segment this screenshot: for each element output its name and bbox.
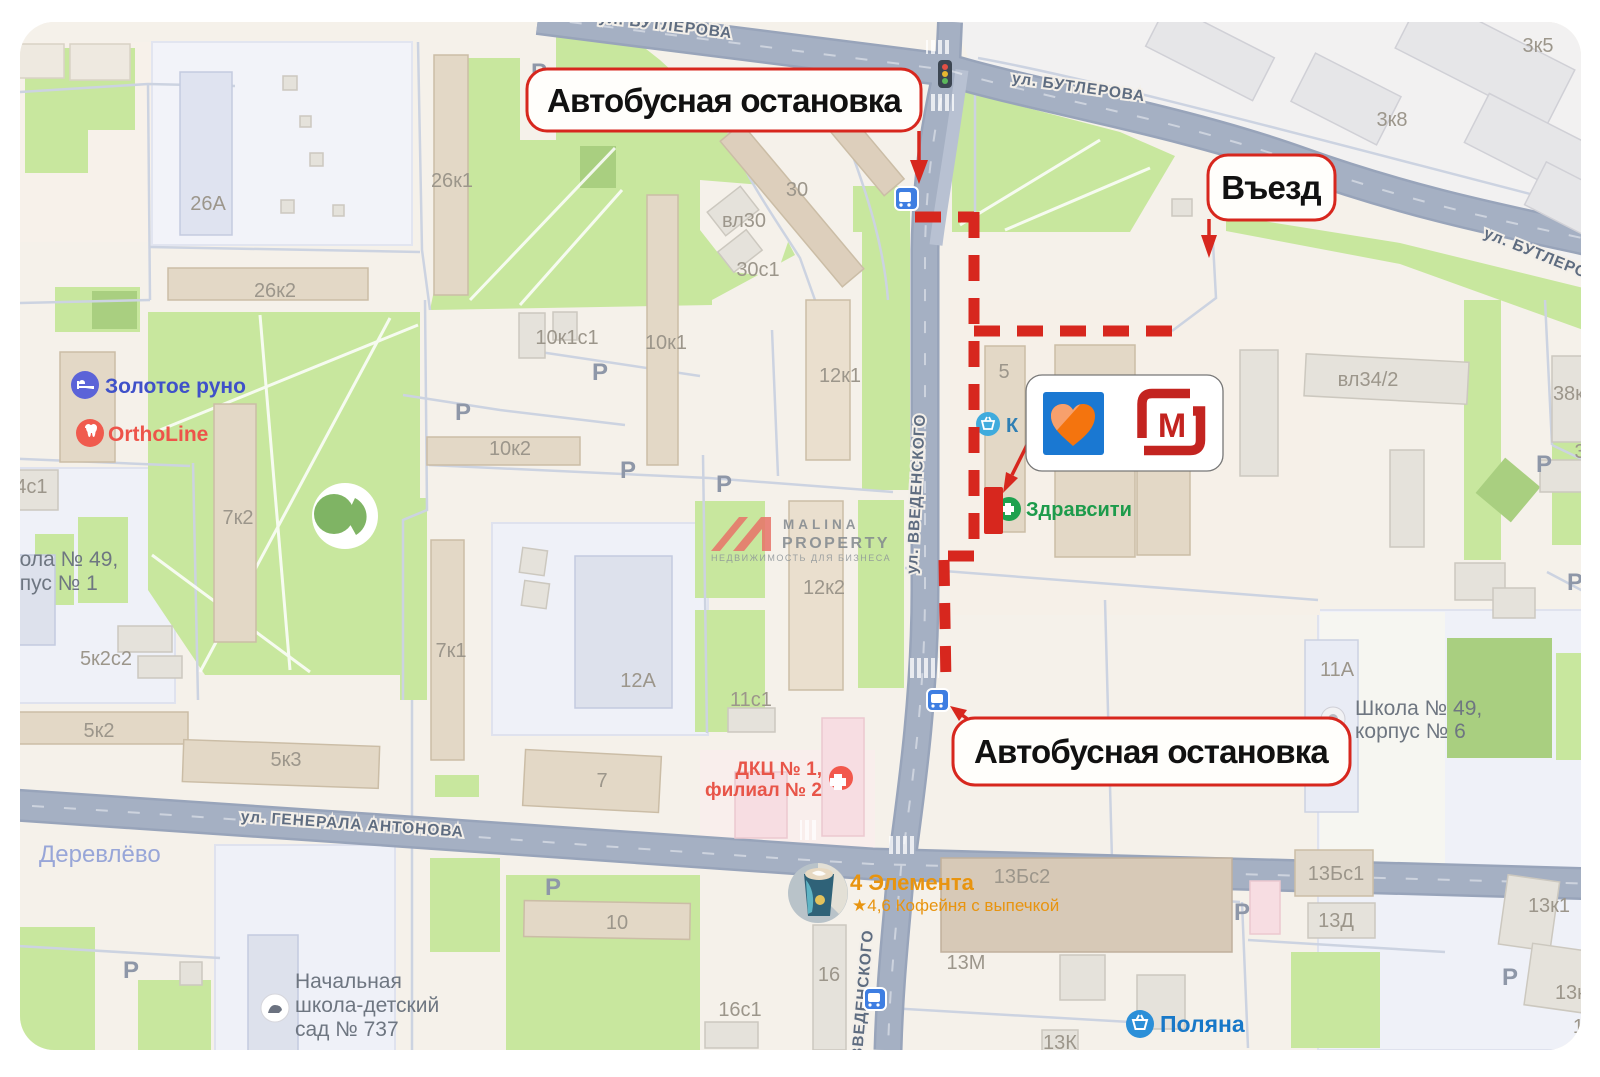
svg-text:5к2: 5к2 <box>84 720 115 742</box>
svg-text:Автобусная остановка: Автобусная остановка <box>974 733 1329 770</box>
svg-text:30: 30 <box>786 179 808 201</box>
svg-text:корпус № 6: корпус № 6 <box>1355 720 1466 743</box>
svg-text:P: P <box>455 399 471 426</box>
svg-text:7к1: 7к1 <box>436 640 467 662</box>
svg-text:Въезд: Въезд <box>1221 169 1321 206</box>
svg-text:13к1: 13к1 <box>1528 895 1570 917</box>
svg-text:12к2: 12к2 <box>803 577 845 599</box>
svg-text:P: P <box>716 471 732 498</box>
svg-text:10к1с1: 10к1с1 <box>535 327 598 349</box>
svg-text:26А: 26А <box>190 193 226 215</box>
svg-text:НЕДВИЖИМОСТЬ ДЛЯ БИЗНЕСА: НЕДВИЖИМОСТЬ ДЛЯ БИЗНЕСА <box>711 553 891 563</box>
svg-text:P: P <box>620 457 636 484</box>
svg-text:13К: 13К <box>1043 1032 1077 1050</box>
svg-text:13Д: 13Д <box>1318 910 1354 932</box>
svg-text:К: К <box>1006 415 1019 437</box>
svg-text:13: 13 <box>1573 1016 1581 1038</box>
svg-text:7к2: 7к2 <box>223 507 254 529</box>
svg-text:вл30: вл30 <box>722 210 766 232</box>
svg-text:Здравсити: Здравсити <box>1026 499 1132 521</box>
svg-text:7: 7 <box>596 770 607 792</box>
svg-text:P: P <box>1502 964 1518 991</box>
svg-text:М: М <box>1158 407 1186 445</box>
svg-text:ДКЦ № 1,: ДКЦ № 1, <box>735 759 822 780</box>
svg-text:26к1: 26к1 <box>431 170 473 192</box>
svg-text:10к2: 10к2 <box>489 438 531 460</box>
svg-text:Золотое руно: Золотое руно <box>105 375 246 398</box>
svg-text:Автобусная остановка: Автобусная остановка <box>547 82 902 119</box>
svg-text:3к5: 3к5 <box>1523 35 1554 57</box>
svg-text:16с1: 16с1 <box>718 999 761 1021</box>
svg-text:10к1: 10к1 <box>645 332 687 354</box>
svg-text:38к: 38к <box>1575 441 1582 463</box>
svg-text:11с1: 11с1 <box>730 689 772 711</box>
svg-text:OrthoLine: OrthoLine <box>108 423 208 446</box>
svg-text:30с1: 30с1 <box>736 259 779 281</box>
svg-text:MALINA: MALINA <box>783 517 860 532</box>
svg-text:P: P <box>1567 569 1581 596</box>
svg-text:38к1: 38к1 <box>1553 383 1581 405</box>
svg-text:P: P <box>592 359 608 386</box>
svg-text:26к2: 26к2 <box>254 280 296 302</box>
svg-text:сад № 737: сад № 737 <box>295 1018 399 1041</box>
svg-text:P: P <box>123 957 139 984</box>
svg-text:5: 5 <box>998 361 1009 383</box>
svg-text:Школа № 49,: Школа № 49, <box>1355 697 1482 720</box>
svg-text:13М: 13М <box>947 952 986 974</box>
svg-text:P: P <box>545 874 561 901</box>
svg-text:12А: 12А <box>620 670 656 692</box>
svg-text:Школа № 49,: Школа № 49, <box>20 548 118 571</box>
svg-text:корпус № 1: корпус № 1 <box>20 572 98 595</box>
svg-text:11А: 11А <box>1320 659 1355 681</box>
svg-text:13Бс1: 13Бс1 <box>1308 863 1365 885</box>
svg-text:P: P <box>1536 451 1552 478</box>
svg-text:★4,6 Кофейня с выпечкой: ★4,6 Кофейня с выпечкой <box>852 896 1059 915</box>
svg-text:5к3: 5к3 <box>271 749 302 771</box>
svg-text:3к8: 3к8 <box>1377 109 1408 131</box>
svg-text:P: P <box>1234 899 1250 926</box>
svg-text:к4с1: к4с1 <box>20 476 48 498</box>
svg-text:5к2с2: 5к2с2 <box>80 648 132 670</box>
svg-text:вл34/2: вл34/2 <box>1338 369 1399 391</box>
svg-text:13Бс2: 13Бс2 <box>994 866 1051 888</box>
svg-text:12к1: 12к1 <box>819 365 861 387</box>
svg-text:16: 16 <box>818 964 840 986</box>
svg-text:школа-детский: школа-детский <box>295 994 439 1017</box>
svg-text:4 Элемента: 4 Элемента <box>850 870 975 895</box>
svg-text:13к2: 13к2 <box>1555 982 1581 1004</box>
svg-text:Начальная: Начальная <box>295 970 402 993</box>
svg-text:PROPERTY: PROPERTY <box>782 535 890 552</box>
svg-text:филиал № 2: филиал № 2 <box>705 780 822 801</box>
svg-text:10: 10 <box>606 912 628 934</box>
svg-text:Деревлёво: Деревлёво <box>39 841 161 868</box>
svg-text:Поляна: Поляна <box>1160 1011 1245 1037</box>
